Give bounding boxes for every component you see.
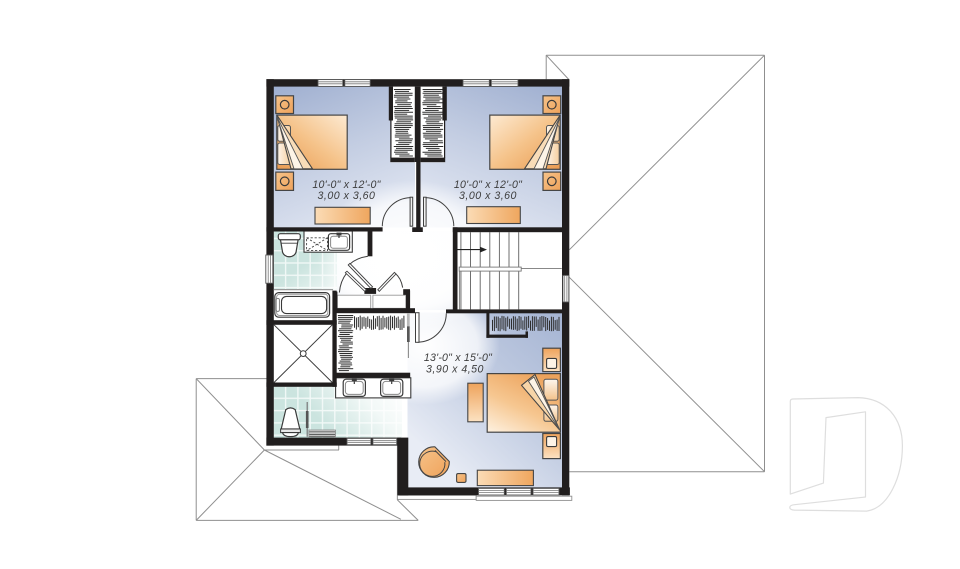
svg-text:13'-0" x 15'-0": 13'-0" x 15'-0" bbox=[424, 352, 493, 364]
svg-text:3,90 x 4,50: 3,90 x 4,50 bbox=[426, 364, 484, 376]
svg-text:3,00 x 3,60: 3,00 x 3,60 bbox=[318, 190, 376, 202]
svg-text:3,00 x 3,60: 3,00 x 3,60 bbox=[459, 190, 517, 202]
svg-text:10'-0" x 12'-0": 10'-0" x 12'-0" bbox=[454, 179, 523, 191]
svg-text:10'-0" x 12'-0": 10'-0" x 12'-0" bbox=[312, 179, 381, 191]
